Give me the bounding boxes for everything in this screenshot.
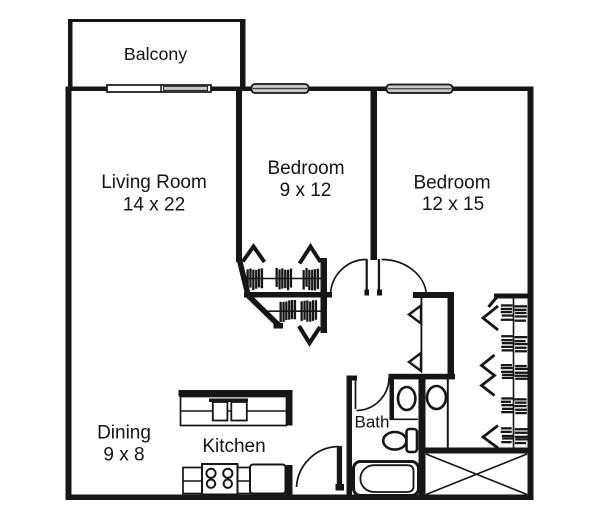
svg-text:Bedroom: Bedroom (413, 173, 490, 194)
svg-text:12 x 15: 12 x 15 (422, 194, 484, 215)
svg-text:Bedroom: Bedroom (267, 158, 344, 179)
svg-text:Kitchen: Kitchen (202, 436, 265, 457)
svg-text:9 x 8: 9 x 8 (103, 445, 144, 466)
svg-text:14 x 22: 14 x 22 (123, 195, 185, 216)
svg-text:Living Room: Living Room (101, 172, 207, 193)
svg-text:Balcony: Balcony (124, 44, 187, 64)
svg-text:Dining: Dining (97, 423, 151, 444)
svg-text:9 x 12: 9 x 12 (280, 180, 332, 201)
svg-text:Bath: Bath (355, 413, 390, 432)
